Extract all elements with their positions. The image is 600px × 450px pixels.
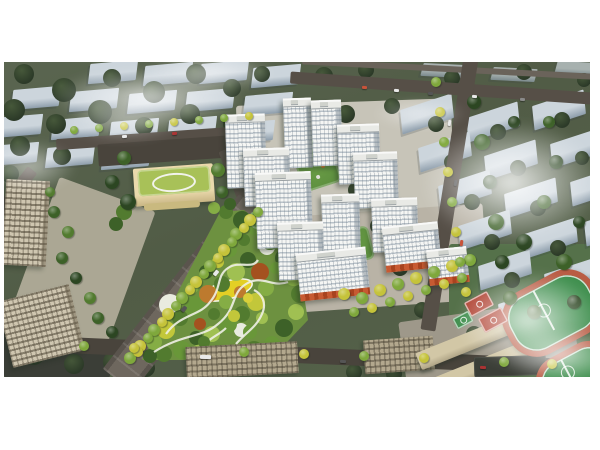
street-tree bbox=[195, 116, 203, 124]
pitch-center-circle bbox=[558, 363, 577, 377]
office-building bbox=[4, 179, 50, 267]
park-tree bbox=[204, 326, 220, 342]
tree bbox=[10, 136, 30, 156]
street-tree bbox=[356, 292, 368, 304]
tree bbox=[52, 78, 76, 102]
garden-accent bbox=[315, 174, 320, 179]
park-tree bbox=[256, 312, 268, 324]
street-tree bbox=[299, 349, 309, 359]
park-tree bbox=[228, 310, 240, 322]
street-tree bbox=[239, 223, 249, 233]
tree bbox=[14, 64, 34, 84]
car bbox=[362, 86, 367, 89]
street-tree bbox=[117, 151, 131, 165]
street-tree bbox=[253, 207, 263, 217]
street-tree bbox=[70, 272, 82, 284]
street-tree bbox=[84, 292, 96, 304]
background-building bbox=[199, 62, 249, 84]
court-circle bbox=[459, 315, 468, 324]
street-tree bbox=[213, 253, 223, 263]
street-tree bbox=[170, 118, 178, 126]
roof-structure bbox=[350, 126, 361, 130]
car bbox=[480, 366, 486, 369]
street-tree bbox=[474, 134, 490, 150]
tree bbox=[346, 364, 362, 377]
park-tree bbox=[208, 308, 220, 320]
street-tree bbox=[145, 120, 153, 128]
court-circle bbox=[489, 315, 498, 324]
court-circle bbox=[475, 299, 484, 308]
street-tree bbox=[464, 254, 476, 266]
street-tree bbox=[227, 237, 237, 247]
street-tree bbox=[120, 194, 136, 210]
park-tree bbox=[219, 295, 233, 309]
street-tree bbox=[79, 341, 89, 351]
car bbox=[520, 98, 525, 101]
street-tree bbox=[508, 116, 520, 128]
street-tree bbox=[573, 216, 585, 228]
street-tree bbox=[367, 303, 377, 313]
street-tree bbox=[120, 122, 128, 130]
park-plaza bbox=[234, 323, 248, 337]
street-tree bbox=[439, 279, 449, 289]
street-tree bbox=[483, 175, 497, 189]
residential-tower bbox=[321, 193, 361, 250]
street-tree bbox=[70, 126, 78, 134]
park-tree bbox=[208, 202, 220, 214]
park-tree bbox=[243, 293, 253, 303]
tree bbox=[103, 69, 121, 87]
tree bbox=[4, 99, 25, 121]
architectural-aerial-rendering bbox=[0, 0, 600, 450]
street-tree bbox=[547, 359, 557, 369]
street-tree bbox=[359, 351, 369, 361]
tree bbox=[64, 354, 84, 374]
street-tree bbox=[62, 226, 74, 238]
street-tree bbox=[143, 333, 153, 343]
park-tree bbox=[243, 325, 257, 339]
tree bbox=[223, 79, 241, 97]
street-tree bbox=[349, 307, 359, 317]
tree bbox=[254, 66, 270, 82]
street-tree bbox=[45, 187, 55, 197]
street-tree bbox=[457, 273, 467, 283]
tree bbox=[186, 64, 206, 84]
street-tree bbox=[443, 167, 453, 177]
street-tree bbox=[495, 255, 509, 269]
background-building bbox=[584, 205, 590, 246]
street-tree bbox=[499, 357, 509, 367]
street-tree bbox=[447, 197, 457, 207]
street-tree bbox=[185, 285, 195, 295]
street-tree bbox=[245, 112, 253, 120]
tree bbox=[428, 116, 444, 132]
street-tree bbox=[106, 326, 118, 338]
park-tree bbox=[234, 286, 246, 298]
tree bbox=[384, 98, 400, 114]
car bbox=[428, 92, 433, 95]
street-tree bbox=[338, 288, 350, 300]
tree bbox=[510, 160, 526, 176]
tree bbox=[143, 81, 165, 103]
street-tree bbox=[385, 297, 395, 307]
roof-structure bbox=[320, 102, 328, 106]
park-tree bbox=[194, 318, 206, 330]
street-tree bbox=[567, 295, 581, 309]
street-tree bbox=[421, 285, 431, 295]
car bbox=[472, 95, 477, 98]
street-tree bbox=[435, 107, 445, 117]
roof-structure bbox=[291, 100, 298, 104]
street-tree bbox=[455, 257, 465, 267]
masterplan-rendering-area bbox=[4, 62, 590, 377]
park-tree bbox=[275, 319, 293, 337]
street-tree bbox=[129, 343, 139, 353]
tree bbox=[504, 272, 520, 288]
tree bbox=[464, 194, 480, 210]
street-tree bbox=[211, 163, 225, 177]
street-tree bbox=[431, 77, 441, 87]
background-building bbox=[570, 165, 590, 206]
street-tree bbox=[239, 347, 249, 357]
park-tree bbox=[234, 306, 250, 322]
street-tree bbox=[537, 195, 551, 209]
street-tree bbox=[461, 287, 471, 297]
car bbox=[200, 355, 211, 359]
tree bbox=[575, 151, 589, 165]
street-tree bbox=[48, 206, 60, 218]
street-tree bbox=[527, 305, 541, 319]
tree bbox=[88, 100, 112, 124]
tree bbox=[484, 234, 500, 250]
roof-structure bbox=[257, 150, 269, 154]
street-tree bbox=[105, 175, 119, 189]
street-tree bbox=[439, 137, 449, 147]
street-tree bbox=[157, 317, 167, 327]
roof-structure bbox=[291, 224, 303, 228]
tree bbox=[554, 112, 570, 128]
roof-structure bbox=[272, 174, 286, 178]
car bbox=[122, 135, 127, 138]
park-tree bbox=[247, 293, 265, 311]
street-tree bbox=[556, 254, 572, 270]
street-tree bbox=[419, 353, 429, 363]
street-tree bbox=[199, 269, 209, 279]
roof-structure bbox=[332, 196, 342, 200]
street-tree bbox=[403, 291, 413, 301]
street-tree bbox=[549, 155, 563, 169]
street-tree bbox=[374, 284, 386, 296]
roof-structure bbox=[385, 200, 397, 204]
street-tree bbox=[488, 214, 504, 230]
street-tree bbox=[503, 291, 517, 305]
street-tree bbox=[56, 252, 68, 264]
street-tree bbox=[410, 272, 422, 284]
park-path bbox=[236, 290, 264, 344]
street-tree bbox=[451, 227, 461, 237]
tree bbox=[46, 114, 66, 134]
street-tree bbox=[95, 124, 103, 132]
street-tree bbox=[516, 234, 532, 250]
car bbox=[340, 360, 346, 363]
street-tree bbox=[92, 312, 104, 324]
street-tree bbox=[392, 278, 404, 290]
street-tree bbox=[220, 114, 228, 122]
street-tree bbox=[543, 116, 555, 128]
car bbox=[394, 89, 399, 92]
roof-structure bbox=[366, 154, 377, 158]
street-tree bbox=[428, 266, 440, 278]
park-tree bbox=[219, 315, 237, 333]
tree bbox=[490, 124, 506, 140]
street-tree bbox=[216, 186, 228, 198]
car bbox=[172, 132, 177, 135]
